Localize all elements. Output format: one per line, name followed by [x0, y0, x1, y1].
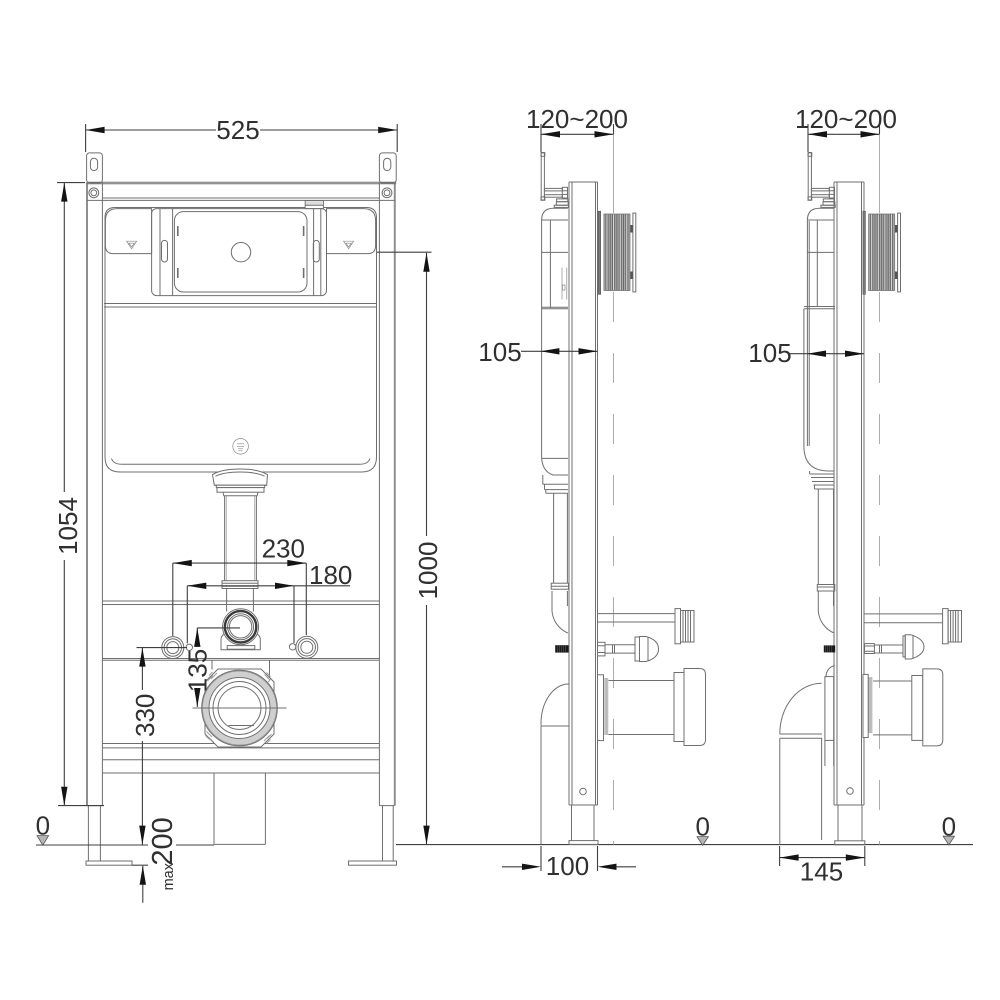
svg-text:120~200: 120~200 [526, 104, 628, 134]
svg-text:120~200: 120~200 [795, 104, 897, 134]
svg-text:525: 525 [216, 115, 259, 145]
svg-text:135: 135 [182, 649, 212, 692]
svg-text:145: 145 [800, 857, 843, 887]
svg-text:105: 105 [478, 337, 521, 367]
svg-text:330: 330 [130, 694, 160, 737]
svg-text:1000: 1000 [413, 542, 443, 600]
svg-text:230: 230 [262, 534, 305, 564]
svg-text:max: max [161, 862, 177, 890]
svg-text:200: 200 [147, 817, 179, 865]
svg-text:180: 180 [309, 560, 352, 590]
svg-text:1054: 1054 [53, 497, 83, 555]
svg-text:105: 105 [748, 338, 791, 368]
svg-text:100: 100 [546, 851, 589, 881]
